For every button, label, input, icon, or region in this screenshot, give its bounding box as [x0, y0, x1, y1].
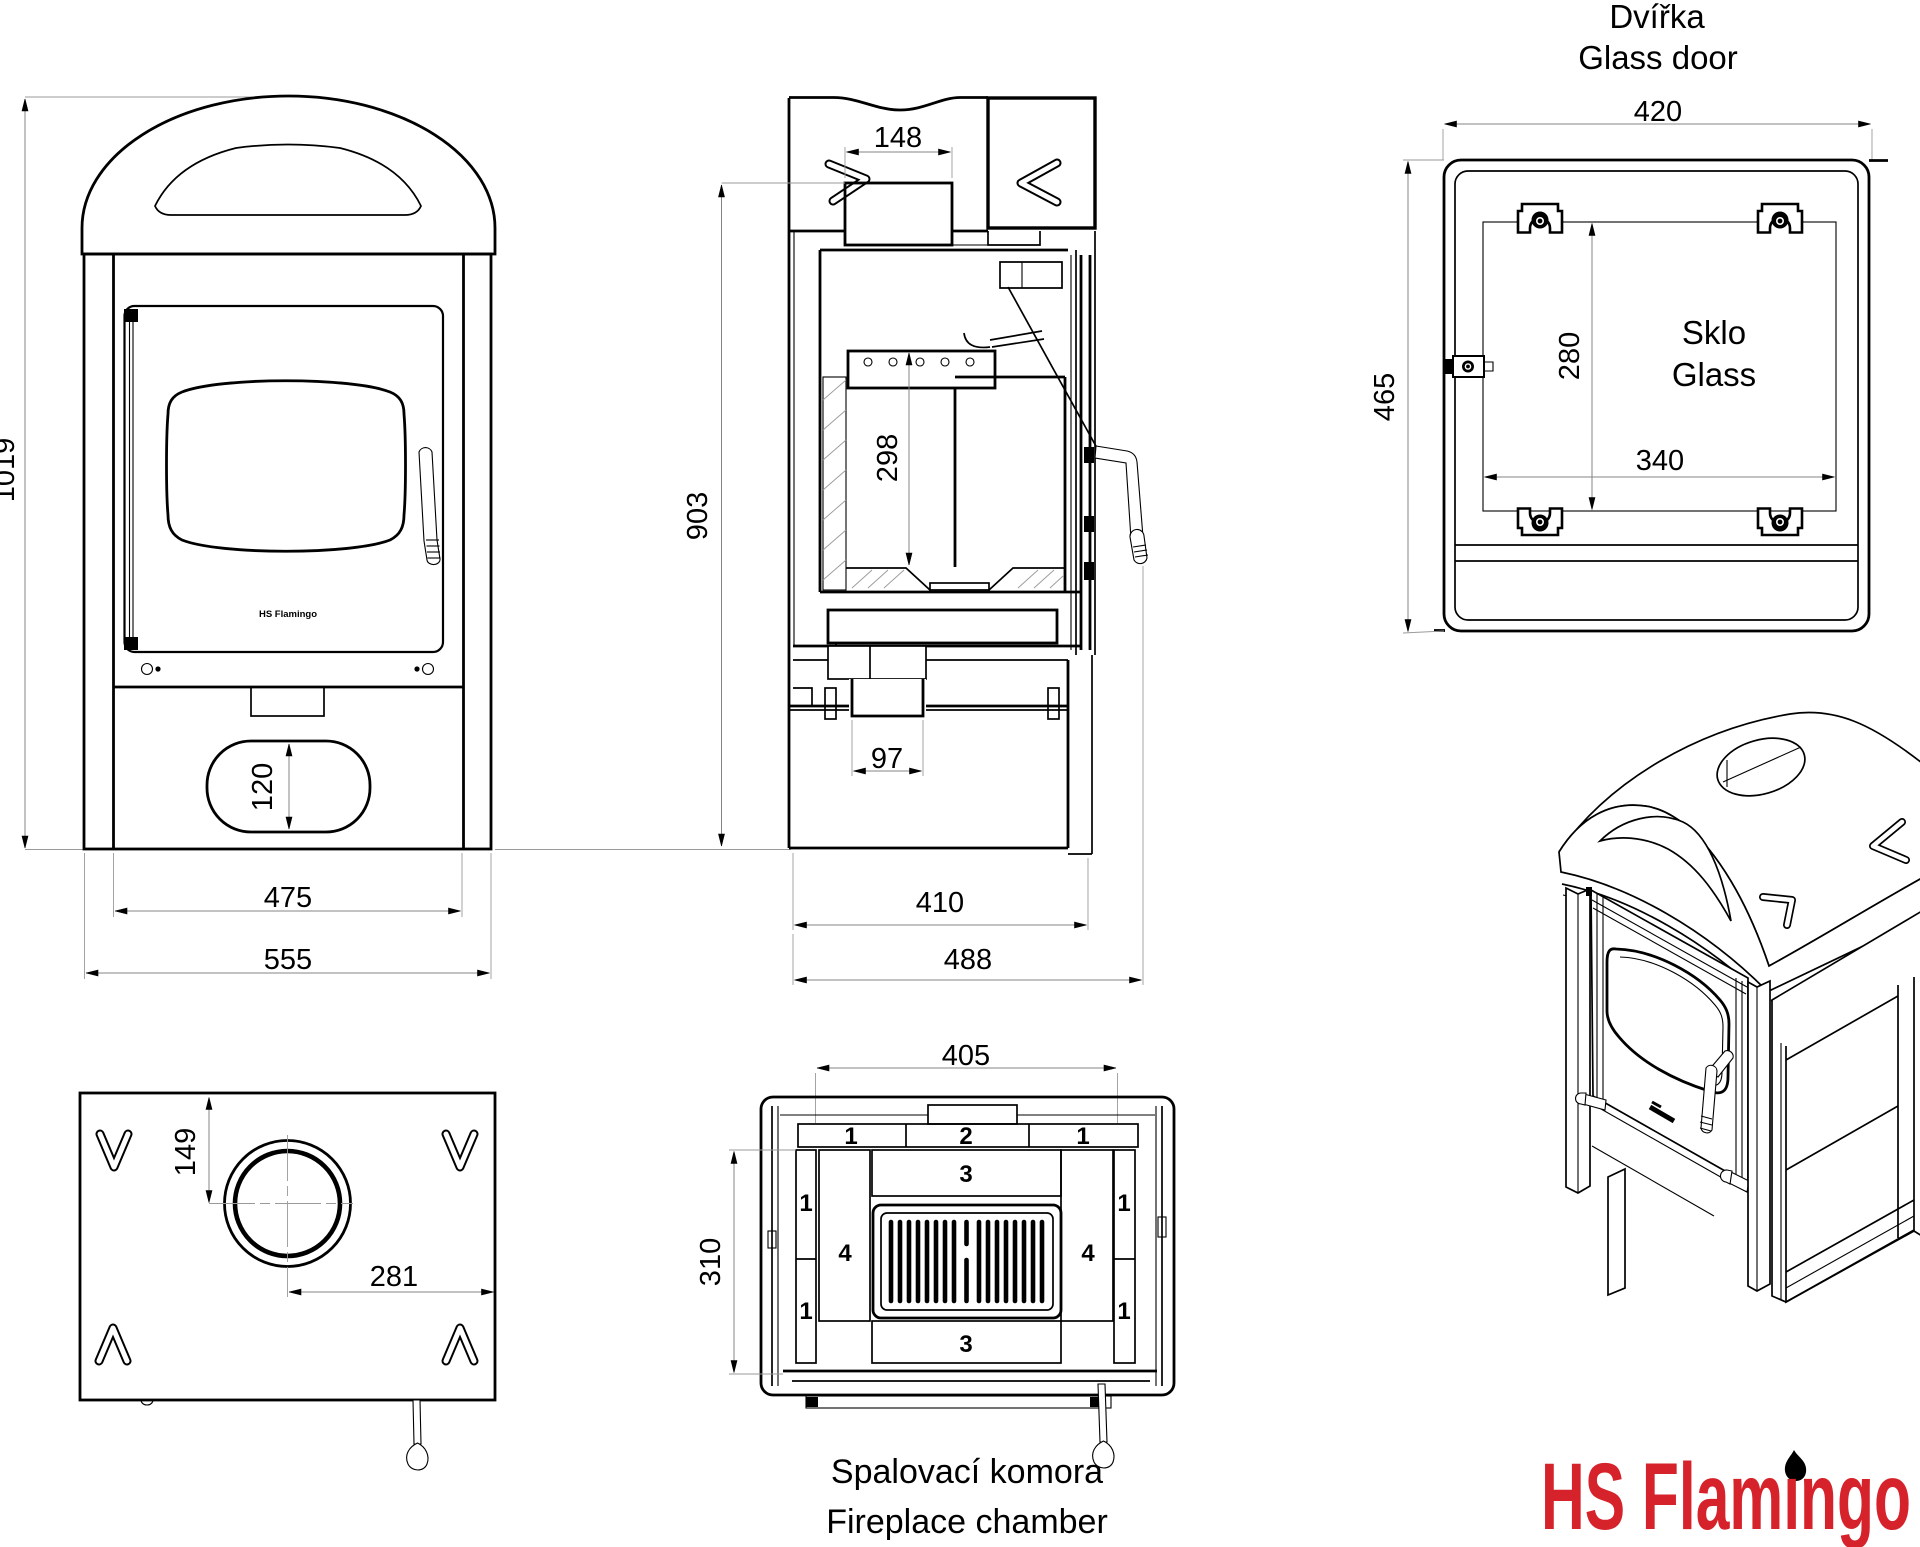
svg-text:410: 410: [916, 887, 964, 919]
svg-text:488: 488: [944, 944, 992, 976]
svg-text:280: 280: [1554, 332, 1586, 380]
svg-text:4: 4: [1081, 1240, 1095, 1267]
svg-text:4: 4: [838, 1240, 852, 1267]
svg-text:420: 420: [1634, 96, 1682, 128]
svg-text:1019: 1019: [0, 438, 21, 503]
svg-text:1: 1: [1117, 1190, 1130, 1217]
svg-text:Fireplace chamber: Fireplace chamber: [826, 1503, 1108, 1541]
svg-text:2: 2: [959, 1123, 972, 1150]
svg-text:1: 1: [1076, 1123, 1089, 1150]
svg-text:Glass: Glass: [1672, 356, 1756, 393]
svg-text:465: 465: [1369, 373, 1401, 421]
svg-text:903: 903: [682, 492, 714, 540]
svg-text:1: 1: [799, 1190, 812, 1217]
svg-text:475: 475: [264, 882, 312, 914]
svg-text:1: 1: [799, 1298, 812, 1325]
svg-text:3: 3: [959, 1331, 972, 1358]
svg-text:1: 1: [1117, 1298, 1130, 1325]
svg-text:120: 120: [247, 763, 279, 811]
svg-text:340: 340: [1636, 445, 1684, 477]
svg-text:Dvířka: Dvířka: [1609, 0, 1705, 35]
svg-text:405: 405: [942, 1040, 990, 1072]
svg-text:Spalovací komora: Spalovací komora: [831, 1453, 1103, 1491]
svg-text:281: 281: [370, 1261, 418, 1293]
svg-text:Glass door: Glass door: [1578, 39, 1738, 76]
svg-text:HS Flamingo: HS Flamingo: [259, 609, 317, 620]
svg-text:97: 97: [871, 743, 903, 775]
svg-text:298: 298: [872, 434, 904, 482]
svg-text:148: 148: [874, 122, 922, 154]
svg-text:310: 310: [695, 1238, 727, 1286]
svg-text:149: 149: [170, 1128, 202, 1176]
svg-text:555: 555: [264, 944, 312, 976]
svg-text:HS Flamıngo: HS Flamıngo: [1541, 1444, 1911, 1547]
svg-text:3: 3: [959, 1161, 972, 1188]
svg-text:Sklo: Sklo: [1682, 314, 1746, 351]
svg-text:1: 1: [844, 1123, 857, 1150]
